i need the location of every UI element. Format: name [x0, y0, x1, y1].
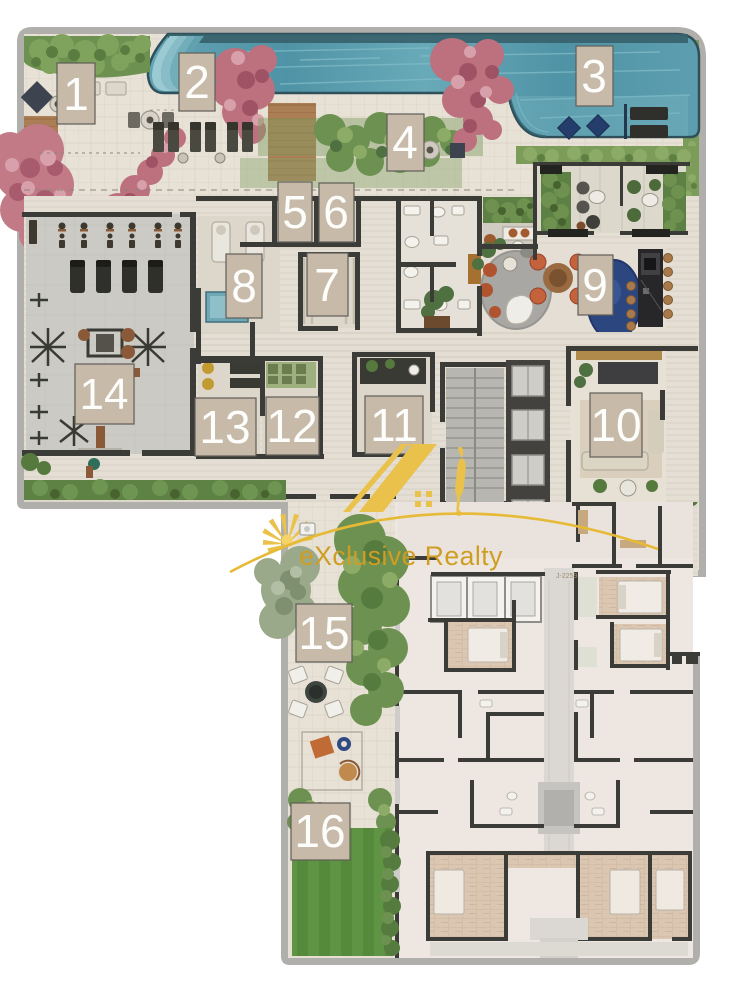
svg-text:10: 10	[590, 399, 641, 451]
svg-text:9: 9	[582, 259, 608, 311]
svg-text:1: 1	[63, 68, 89, 120]
svg-text:4: 4	[392, 116, 418, 168]
svg-text:13: 13	[199, 401, 250, 453]
svg-text:8: 8	[231, 260, 257, 312]
svg-text:3: 3	[581, 50, 607, 102]
svg-text:15: 15	[298, 607, 349, 659]
svg-text:14: 14	[80, 370, 129, 419]
svg-text:16: 16	[294, 805, 345, 857]
svg-text:5: 5	[282, 186, 308, 238]
svg-text:2: 2	[184, 56, 210, 108]
svg-text:7: 7	[314, 259, 340, 311]
svg-text:J-2259: J-2259	[556, 573, 578, 580]
svg-text:11: 11	[370, 399, 418, 451]
svg-text:eXclusive Realty: eXclusive Realty	[299, 541, 503, 571]
svg-text:6: 6	[323, 186, 349, 238]
svg-text:12: 12	[266, 400, 317, 452]
